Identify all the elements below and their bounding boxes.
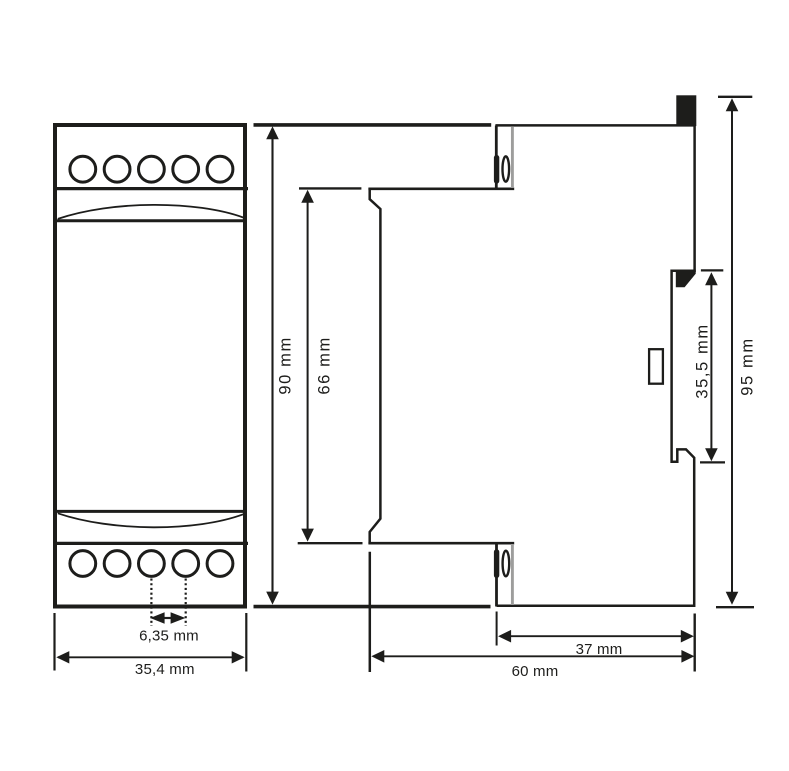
svg-text:35,4 mm: 35,4 mm xyxy=(135,661,195,678)
svg-text:60 mm: 60 mm xyxy=(512,663,559,680)
svg-text:95 mm: 95 mm xyxy=(738,337,756,395)
svg-text:35,5 mm: 35,5 mm xyxy=(693,323,711,398)
svg-text:6,35 mm: 6,35 mm xyxy=(139,627,199,644)
svg-text:90 mm: 90 mm xyxy=(276,336,294,394)
svg-text:66 mm: 66 mm xyxy=(315,336,333,394)
